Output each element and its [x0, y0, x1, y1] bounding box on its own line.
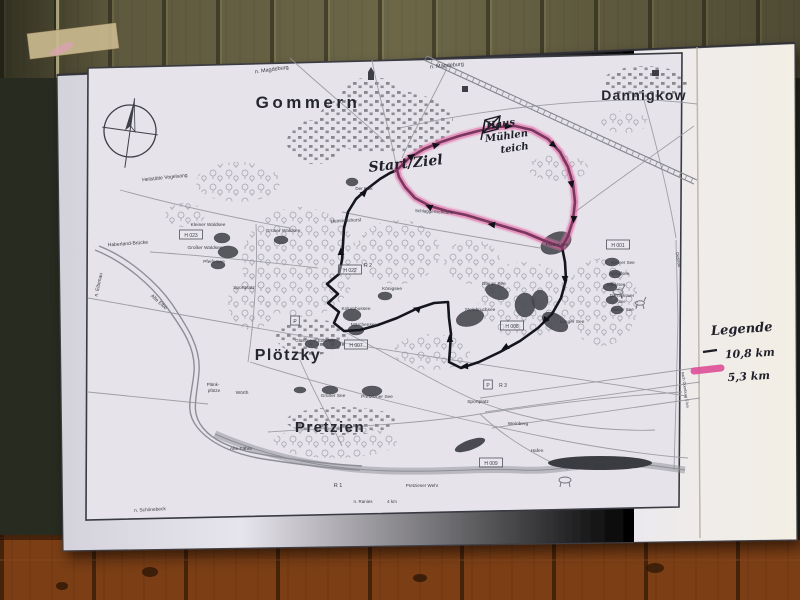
map-label: Der Kulk	[355, 186, 373, 191]
map-label: Alte Fähre	[230, 446, 252, 452]
map-label: n. Ranies	[353, 499, 373, 504]
town-label: Dannigkow	[601, 87, 686, 103]
map-label: R 3	[499, 383, 507, 389]
map-label: Schilfsee	[611, 271, 630, 276]
paper-sheet: GommernDannigkowPlötzkyPretzienn. Magdeb…	[57, 43, 797, 551]
map-label: Dannigkower	[610, 293, 635, 298]
map-label: Plänk-	[207, 382, 220, 387]
map-label: Kleiner See	[611, 260, 635, 265]
map-label: Sportplatz	[233, 285, 255, 291]
map-label: Glassee u. Edersee	[295, 338, 335, 343]
map-label: Märchensee	[351, 322, 378, 328]
map-label: Großer Waldsee	[187, 245, 222, 251]
wood-knot	[142, 567, 158, 577]
map-label: Pretziener Wehr	[406, 483, 439, 488]
legend-item-10-8km: 10,8 km	[725, 346, 776, 362]
map-label: pfütze	[208, 388, 221, 393]
map-label: Pfeifersee	[203, 259, 225, 265]
map-label: Steinbruchsee	[465, 307, 496, 313]
map-label: Hafen	[531, 448, 544, 454]
legend-item-5-3km: 5,3 km	[727, 369, 770, 384]
map-label: Grüner See	[321, 393, 346, 399]
map-label: H 009	[484, 461, 498, 467]
wood-knot	[413, 574, 427, 582]
map-label: Weinberg	[508, 421, 529, 427]
map-label: R 2	[364, 263, 372, 269]
map-label: Sportplatz	[467, 399, 489, 405]
map-label: Grüner Waldsee	[266, 228, 301, 234]
wood-knot	[56, 582, 68, 590]
town-label: Plötzky	[255, 347, 322, 364]
photo-of-route-map-on-wooden-wall: GommernDannigkowPlötzkyPretzienn. Magdeb…	[0, 0, 800, 600]
map-label: R 1	[334, 483, 343, 489]
map-label: See	[618, 299, 626, 304]
harbor-water	[548, 456, 652, 470]
map-label: Blauer See	[482, 281, 506, 287]
map-label: Königsee	[382, 286, 402, 292]
map-label: Kleiner Waldsee	[191, 222, 226, 228]
map-label: Pretziener See	[361, 394, 393, 400]
map-label: H 023	[184, 233, 198, 239]
map-label: H 008	[505, 324, 519, 330]
map-label: H 007	[349, 343, 363, 349]
map-label: Kolumbussee	[341, 306, 370, 312]
wood-knot	[646, 563, 664, 573]
legend-pink-line-swatch	[694, 368, 721, 371]
map-photo-canvas: GommernDannigkowPlötzkyPretzienn. Magdeb…	[0, 0, 800, 600]
map-label: H 022	[343, 268, 357, 274]
map-label: Neuer See	[612, 307, 634, 312]
map-label: Silbersee	[607, 282, 626, 287]
map-label: Wörth	[236, 390, 249, 396]
map-label: Langer See	[560, 319, 585, 325]
town-label: Pretzien	[295, 419, 365, 436]
town-label: Gommern	[256, 93, 361, 112]
map-label: Plattensee	[546, 242, 569, 248]
map-label: H 001	[611, 243, 625, 249]
map-label: 4 km	[387, 499, 397, 504]
